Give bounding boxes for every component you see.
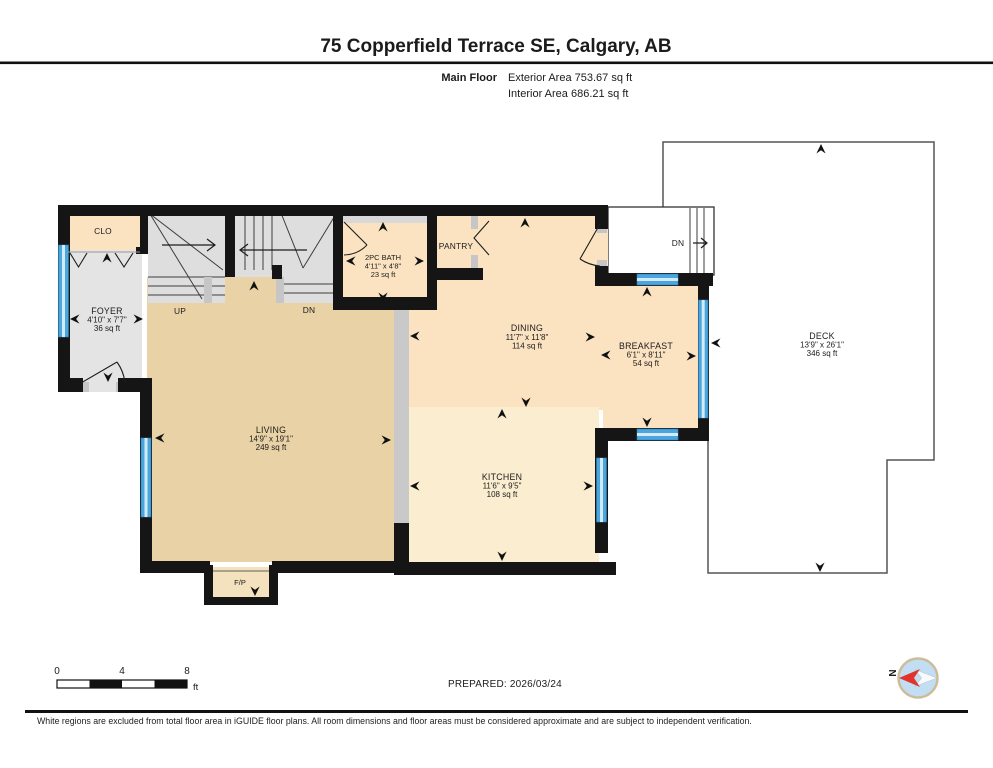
footer: White regions are excluded from total fl…	[25, 710, 968, 726]
room-name-closet: CLO	[94, 226, 112, 236]
living-dining-divider	[394, 310, 409, 523]
wall-entry-left	[58, 378, 83, 392]
stairs-up-floor	[148, 212, 225, 303]
floor-plan-canvas: 75 Copperfield Terrace SE, Calgary, AB M…	[0, 0, 993, 768]
deck-stairs-label: DN	[672, 238, 685, 248]
jamb	[471, 255, 478, 268]
room-name-breakfast: BREAKFAST	[619, 341, 673, 351]
jamb	[276, 277, 284, 303]
jamb	[83, 382, 89, 392]
header-divider	[0, 62, 993, 65]
wall-bath-left	[333, 212, 343, 310]
fireplace-label: F/P	[234, 578, 246, 587]
wall-living-bottom-right	[272, 561, 396, 573]
room-name-foyer: FOYER	[91, 306, 123, 316]
room-area-bath: 23 sq ft	[371, 270, 397, 279]
wall-closet-stub	[136, 247, 148, 254]
compass-north-label: N	[888, 669, 899, 676]
jamb	[471, 216, 478, 229]
deck-stair-box	[608, 207, 714, 275]
foyer-window	[59, 245, 69, 337]
scale-bar: 0 4 8 ft	[54, 666, 198, 693]
wall-stair-stub	[272, 265, 282, 279]
dimension-arrow	[711, 338, 721, 347]
room-area-deck: 346 sq ft	[807, 349, 838, 358]
room-area-foyer: 36 sq ft	[94, 324, 121, 333]
living-floor	[147, 277, 394, 562]
stairs-up-label: UP	[174, 306, 186, 316]
dimension-arrow	[816, 144, 825, 154]
room-name-dining: DINING	[511, 323, 543, 333]
wall-fireplace-bottom	[204, 597, 278, 605]
interior-area-label: Interior Area 686.21 sq ft	[508, 88, 628, 100]
deck-stairs-outline	[608, 207, 714, 275]
compass-rose: N	[888, 659, 938, 698]
stairs-dn-floor	[235, 212, 337, 277]
wall-divider-stub	[394, 523, 409, 563]
wall-pantry-bottom	[427, 268, 483, 280]
footer-divider	[25, 710, 968, 713]
room-name-deck: DECK	[809, 331, 834, 341]
living-window	[141, 438, 151, 517]
jamb	[204, 277, 212, 303]
stairs-dn-label: DN	[303, 305, 316, 315]
scale-tick-8: 8	[184, 666, 190, 677]
prepared-date: PREPARED: 2026/03/24	[448, 679, 562, 690]
exterior-area-label: Exterior Area 753.67 sq ft	[508, 72, 632, 84]
scale-bar-segment	[155, 680, 188, 688]
breakfast-top-window	[637, 274, 678, 285]
wall-stair-divider	[225, 212, 235, 277]
wall-north	[58, 205, 598, 216]
jamb	[597, 260, 607, 266]
kitchen-window	[597, 458, 607, 522]
stairs-dn-lower-floor	[281, 277, 337, 303]
room-area-living: 249 sq ft	[256, 443, 287, 452]
floor-label: Main Floor	[441, 72, 497, 84]
header: 75 Copperfield Terrace SE, Calgary, AB M…	[0, 36, 993, 100]
wall-bath-right	[427, 212, 437, 310]
wall-backdoor-top	[595, 205, 608, 229]
wall-kitchen-bottom	[394, 562, 616, 575]
disclaimer-text: White regions are excluded from total fl…	[37, 716, 752, 726]
room-area-kitchen: 108 sq ft	[487, 490, 518, 499]
room-area-breakfast: 54 sq ft	[633, 359, 660, 368]
scale-unit-label: ft	[193, 682, 199, 693]
dimension-arrow	[815, 563, 824, 573]
breakfast-right-window	[699, 300, 709, 418]
wall-closet-right	[140, 212, 148, 252]
room-name-kitchen: KITCHEN	[482, 472, 522, 482]
scale-tick-4: 4	[119, 666, 125, 677]
bath-vanity	[343, 216, 427, 223]
scale-bar-segment	[90, 680, 123, 688]
floor-plan-page: 75 Copperfield Terrace SE, Calgary, AB M…	[0, 0, 993, 768]
room-name-pantry: PANTRY	[439, 241, 474, 251]
wall-bath-bottom	[333, 297, 437, 310]
breakfast-bottom-window	[637, 429, 678, 440]
room-area-dining: 114 sq ft	[512, 342, 543, 351]
wall-living-bottom-left	[140, 561, 210, 573]
page-title: 75 Copperfield Terrace SE, Calgary, AB	[320, 36, 671, 57]
room-name-living: LIVING	[256, 425, 286, 435]
scale-tick-0: 0	[54, 666, 60, 677]
